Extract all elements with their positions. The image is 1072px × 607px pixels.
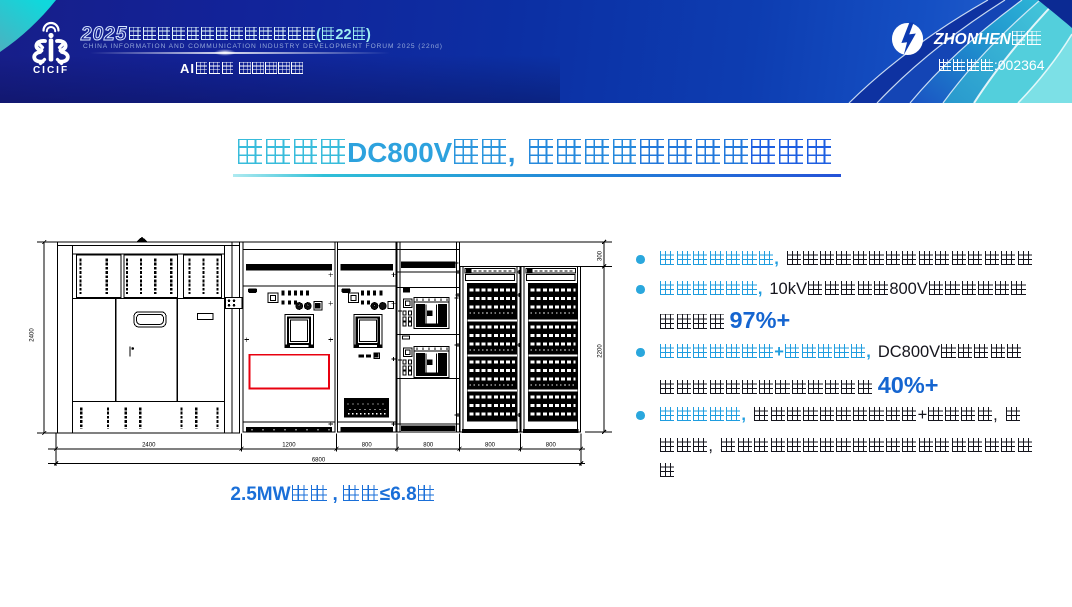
- svg-text:800: 800: [423, 443, 434, 449]
- svg-text:6800: 6800: [312, 458, 326, 464]
- svg-text:300: 300: [598, 250, 604, 261]
- svg-text:2400: 2400: [142, 443, 156, 449]
- svg-text:2400: 2400: [30, 328, 36, 342]
- svg-text:2200: 2200: [598, 344, 604, 358]
- svg-text:800: 800: [485, 443, 496, 449]
- svg-text:800: 800: [546, 443, 557, 449]
- svg-text:1200: 1200: [282, 443, 296, 449]
- svg-text:800: 800: [362, 443, 373, 449]
